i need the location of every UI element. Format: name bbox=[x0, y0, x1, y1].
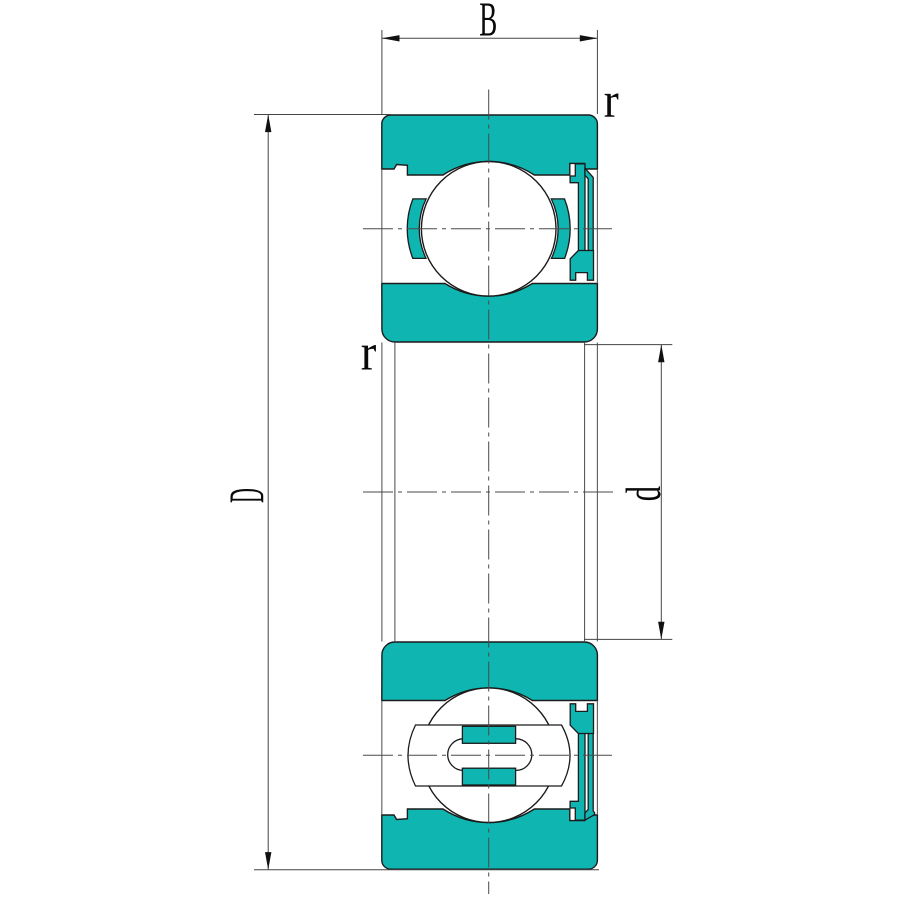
svg-text:B: B bbox=[479, 0, 497, 47]
svg-text:r: r bbox=[361, 323, 377, 381]
svg-text:D: D bbox=[220, 488, 275, 503]
svg-text:r: r bbox=[604, 74, 619, 129]
svg-text:d: d bbox=[616, 486, 672, 501]
